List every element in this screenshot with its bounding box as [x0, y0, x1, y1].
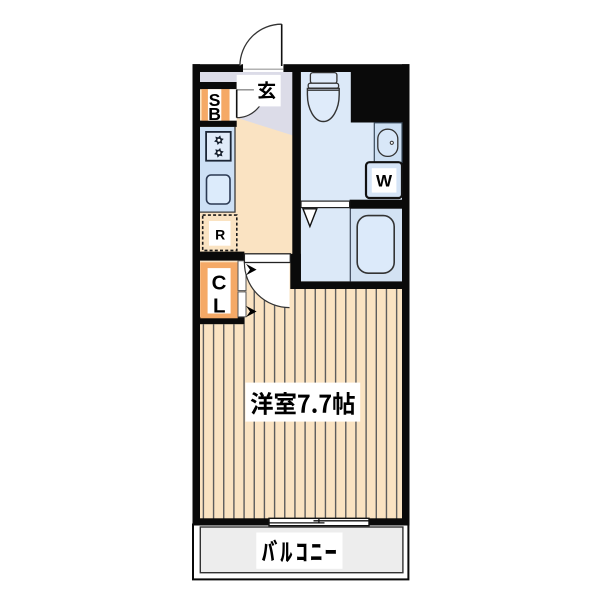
svg-text:B: B — [208, 104, 221, 124]
svg-text:C: C — [212, 272, 227, 295]
svg-text:W: W — [376, 172, 393, 191]
svg-text:R: R — [215, 226, 225, 242]
svg-text:L: L — [213, 295, 226, 318]
